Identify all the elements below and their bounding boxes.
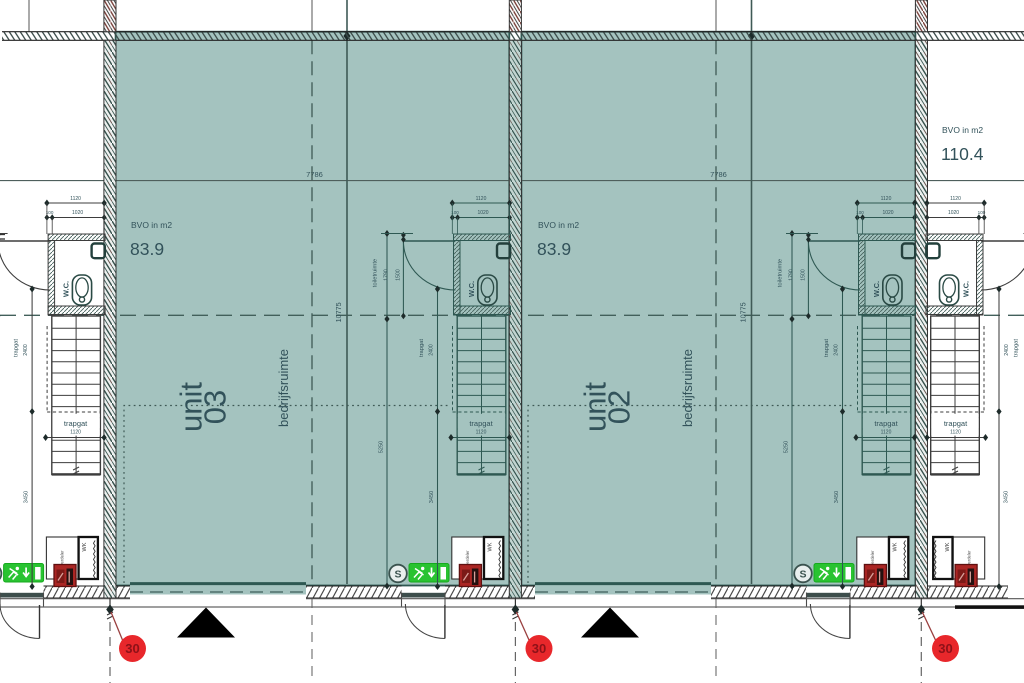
svg-text:3450: 3450 — [429, 491, 435, 503]
svg-text:10775: 10775 — [334, 302, 343, 322]
svg-text:1120: 1120 — [950, 430, 961, 436]
svg-text:1500: 1500 — [800, 269, 806, 281]
svg-text:2400: 2400 — [833, 344, 839, 356]
svg-text:trapgat: trapgat — [824, 339, 830, 357]
svg-text:verdeler: verdeler — [60, 550, 65, 566]
svg-text:1500: 1500 — [395, 269, 401, 281]
svg-text:W.C.: W.C. — [961, 281, 970, 297]
svg-text:WK: WK — [82, 542, 88, 551]
svg-text:5250: 5250 — [379, 441, 385, 453]
svg-text:83.9: 83.9 — [537, 239, 571, 259]
svg-text:WK: WK — [488, 542, 494, 551]
svg-text:BVO in m2: BVO in m2 — [538, 220, 579, 230]
svg-text:trapgat: trapgat — [1014, 339, 1020, 357]
svg-text:trapgat: trapgat — [14, 339, 20, 357]
svg-text:trapgat: trapgat — [64, 419, 88, 428]
svg-text:2400: 2400 — [428, 344, 434, 356]
svg-text:3450: 3450 — [834, 491, 840, 503]
svg-text:trapgat: trapgat — [469, 419, 493, 428]
svg-text:1790: 1790 — [788, 269, 794, 281]
svg-text:WK: WK — [945, 542, 951, 551]
svg-text:03: 03 — [198, 390, 233, 424]
svg-text:83.9: 83.9 — [130, 239, 164, 259]
svg-text:1020: 1020 — [72, 210, 83, 216]
svg-text:10775: 10775 — [739, 302, 748, 322]
svg-text:1120: 1120 — [70, 196, 81, 202]
svg-text:trapgat: trapgat — [874, 419, 898, 428]
svg-text:bedrijfsruimte: bedrijfsruimte — [680, 349, 695, 427]
svg-text:30: 30 — [532, 641, 546, 656]
svg-text:1790: 1790 — [383, 269, 389, 281]
svg-text:5250: 5250 — [784, 441, 790, 453]
svg-text:3450: 3450 — [1004, 491, 1010, 503]
svg-text:1120: 1120 — [70, 430, 81, 436]
svg-text:1120: 1120 — [950, 196, 961, 202]
svg-text:verdeler: verdeler — [870, 550, 875, 566]
svg-text:W.C.: W.C. — [61, 281, 70, 297]
svg-text:1120: 1120 — [881, 430, 892, 436]
svg-text:trapgat: trapgat — [419, 339, 425, 357]
svg-text:1020: 1020 — [948, 210, 959, 216]
svg-text:1120: 1120 — [881, 196, 892, 202]
svg-text:BVO in m2: BVO in m2 — [942, 125, 983, 135]
svg-text:toiletruimte: toiletruimte — [778, 259, 784, 287]
svg-text:7786: 7786 — [306, 170, 323, 179]
svg-text:bedrijfsruimte: bedrijfsruimte — [276, 349, 291, 427]
svg-text:30: 30 — [938, 641, 952, 656]
svg-text:7786: 7786 — [710, 170, 727, 179]
svg-text:2400: 2400 — [1004, 344, 1010, 356]
svg-text:1020: 1020 — [477, 210, 488, 216]
svg-text:1120: 1120 — [476, 196, 487, 202]
svg-text:toiletruimte: toiletruimte — [373, 259, 379, 287]
svg-text:S: S — [394, 569, 401, 581]
svg-text:WK: WK — [893, 542, 899, 551]
svg-text:S: S — [799, 569, 806, 581]
svg-text:3450: 3450 — [24, 491, 30, 503]
svg-text:W.C.: W.C. — [872, 281, 881, 297]
svg-text:1020: 1020 — [882, 210, 893, 216]
svg-text:30: 30 — [125, 641, 139, 656]
svg-text:2400: 2400 — [23, 344, 29, 356]
svg-text:110.4: 110.4 — [941, 144, 984, 164]
svg-text:02: 02 — [602, 390, 637, 424]
svg-text:verdeler: verdeler — [465, 550, 470, 566]
svg-text:BVO in m2: BVO in m2 — [131, 220, 172, 230]
svg-text:W.C.: W.C. — [467, 281, 476, 297]
svg-text:1120: 1120 — [476, 430, 487, 436]
svg-text:verdeler: verdeler — [967, 550, 972, 566]
svg-text:trapgat: trapgat — [944, 419, 968, 428]
